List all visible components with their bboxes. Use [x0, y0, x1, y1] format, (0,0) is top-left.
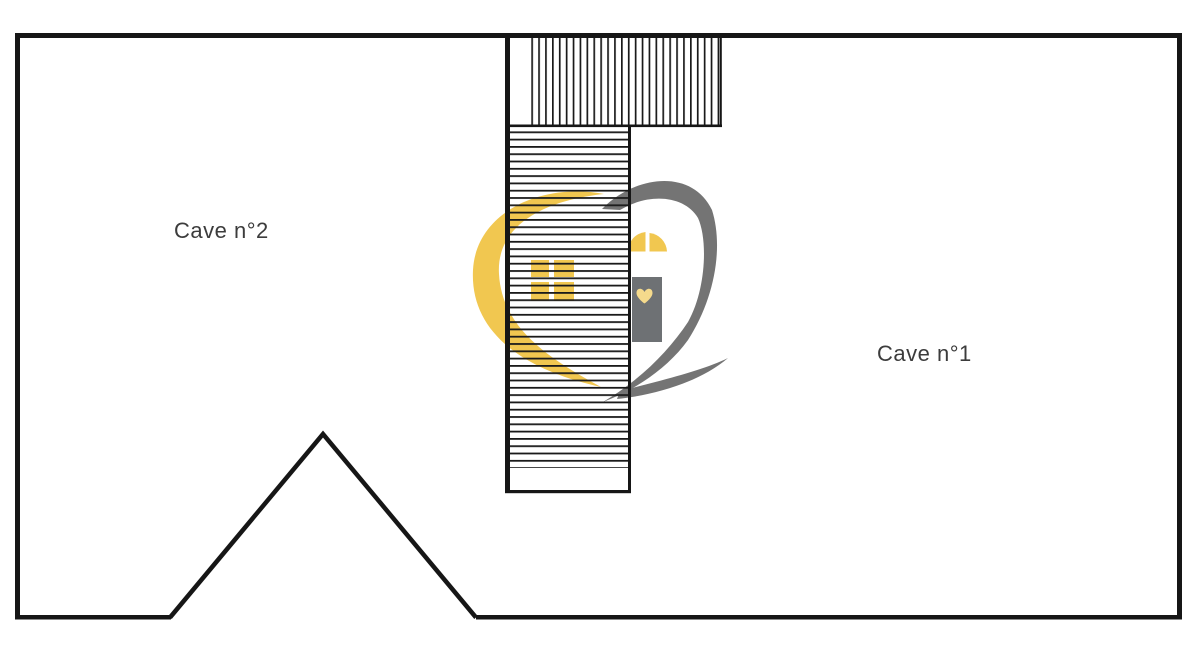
triangle-wall — [170, 434, 476, 618]
stair-wall-left — [505, 33, 510, 493]
outer-wall-bottom-left — [15, 615, 171, 620]
outer-wall-top — [15, 33, 1182, 38]
outer-wall-left — [15, 33, 20, 619]
room-label-cave-2: Cave n°2 — [174, 219, 269, 243]
logo-door-icon — [632, 277, 662, 342]
outer-wall-right — [1177, 33, 1182, 619]
stair-shaft-right-edge — [628, 126, 631, 493]
floor-plan-canvas: Cave n°2 Cave n°1 — [0, 0, 1200, 651]
stair-divider — [505, 125, 722, 128]
stair-upper-right-edge — [720, 37, 722, 127]
stair-shaft-bottom-edge — [505, 490, 631, 493]
logo-tail-swoosh-icon — [617, 358, 728, 399]
logo-awning-icon — [628, 232, 667, 252]
floor-plan-drawing — [0, 0, 1200, 651]
room-label-cave-1: Cave n°1 — [877, 342, 972, 366]
plan-structure — [15, 33, 1182, 620]
outer-wall-bottom-right — [476, 615, 1182, 620]
stair-hatch-upper — [531, 38, 719, 125]
stair-hatch-shaft — [510, 130, 628, 468]
